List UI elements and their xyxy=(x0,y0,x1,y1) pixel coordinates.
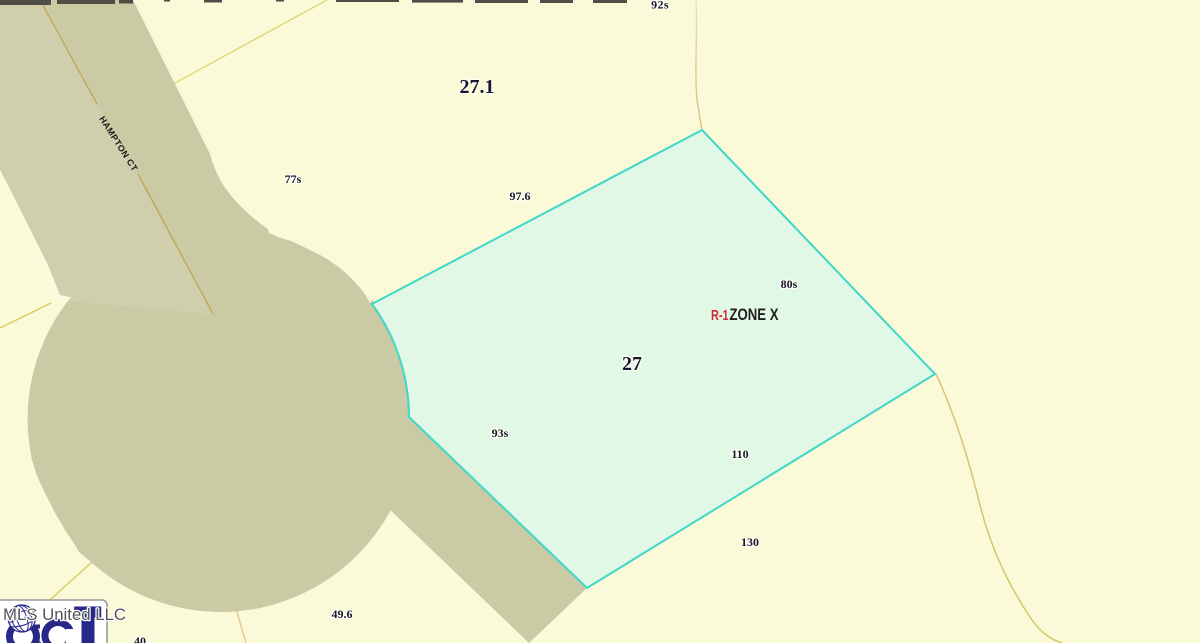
svg-text:MLS United LLC: MLS United LLC xyxy=(3,606,126,624)
svg-text:80s: 80s xyxy=(781,277,798,291)
svg-text:40: 40 xyxy=(134,634,146,643)
svg-text:110: 110 xyxy=(731,447,748,461)
svg-text:ZONE X: ZONE X xyxy=(730,305,780,324)
svg-text:77s: 77s xyxy=(285,172,302,186)
svg-text:93s: 93s xyxy=(492,426,509,440)
svg-text:130: 130 xyxy=(741,535,759,549)
svg-text:27.1: 27.1 xyxy=(460,76,495,98)
svg-text:97.6: 97.6 xyxy=(510,189,531,203)
svg-text:92s: 92s xyxy=(651,0,669,12)
svg-text:27: 27 xyxy=(622,353,642,375)
svg-text:R-1: R-1 xyxy=(711,308,729,324)
svg-text:49.6: 49.6 xyxy=(332,607,353,621)
